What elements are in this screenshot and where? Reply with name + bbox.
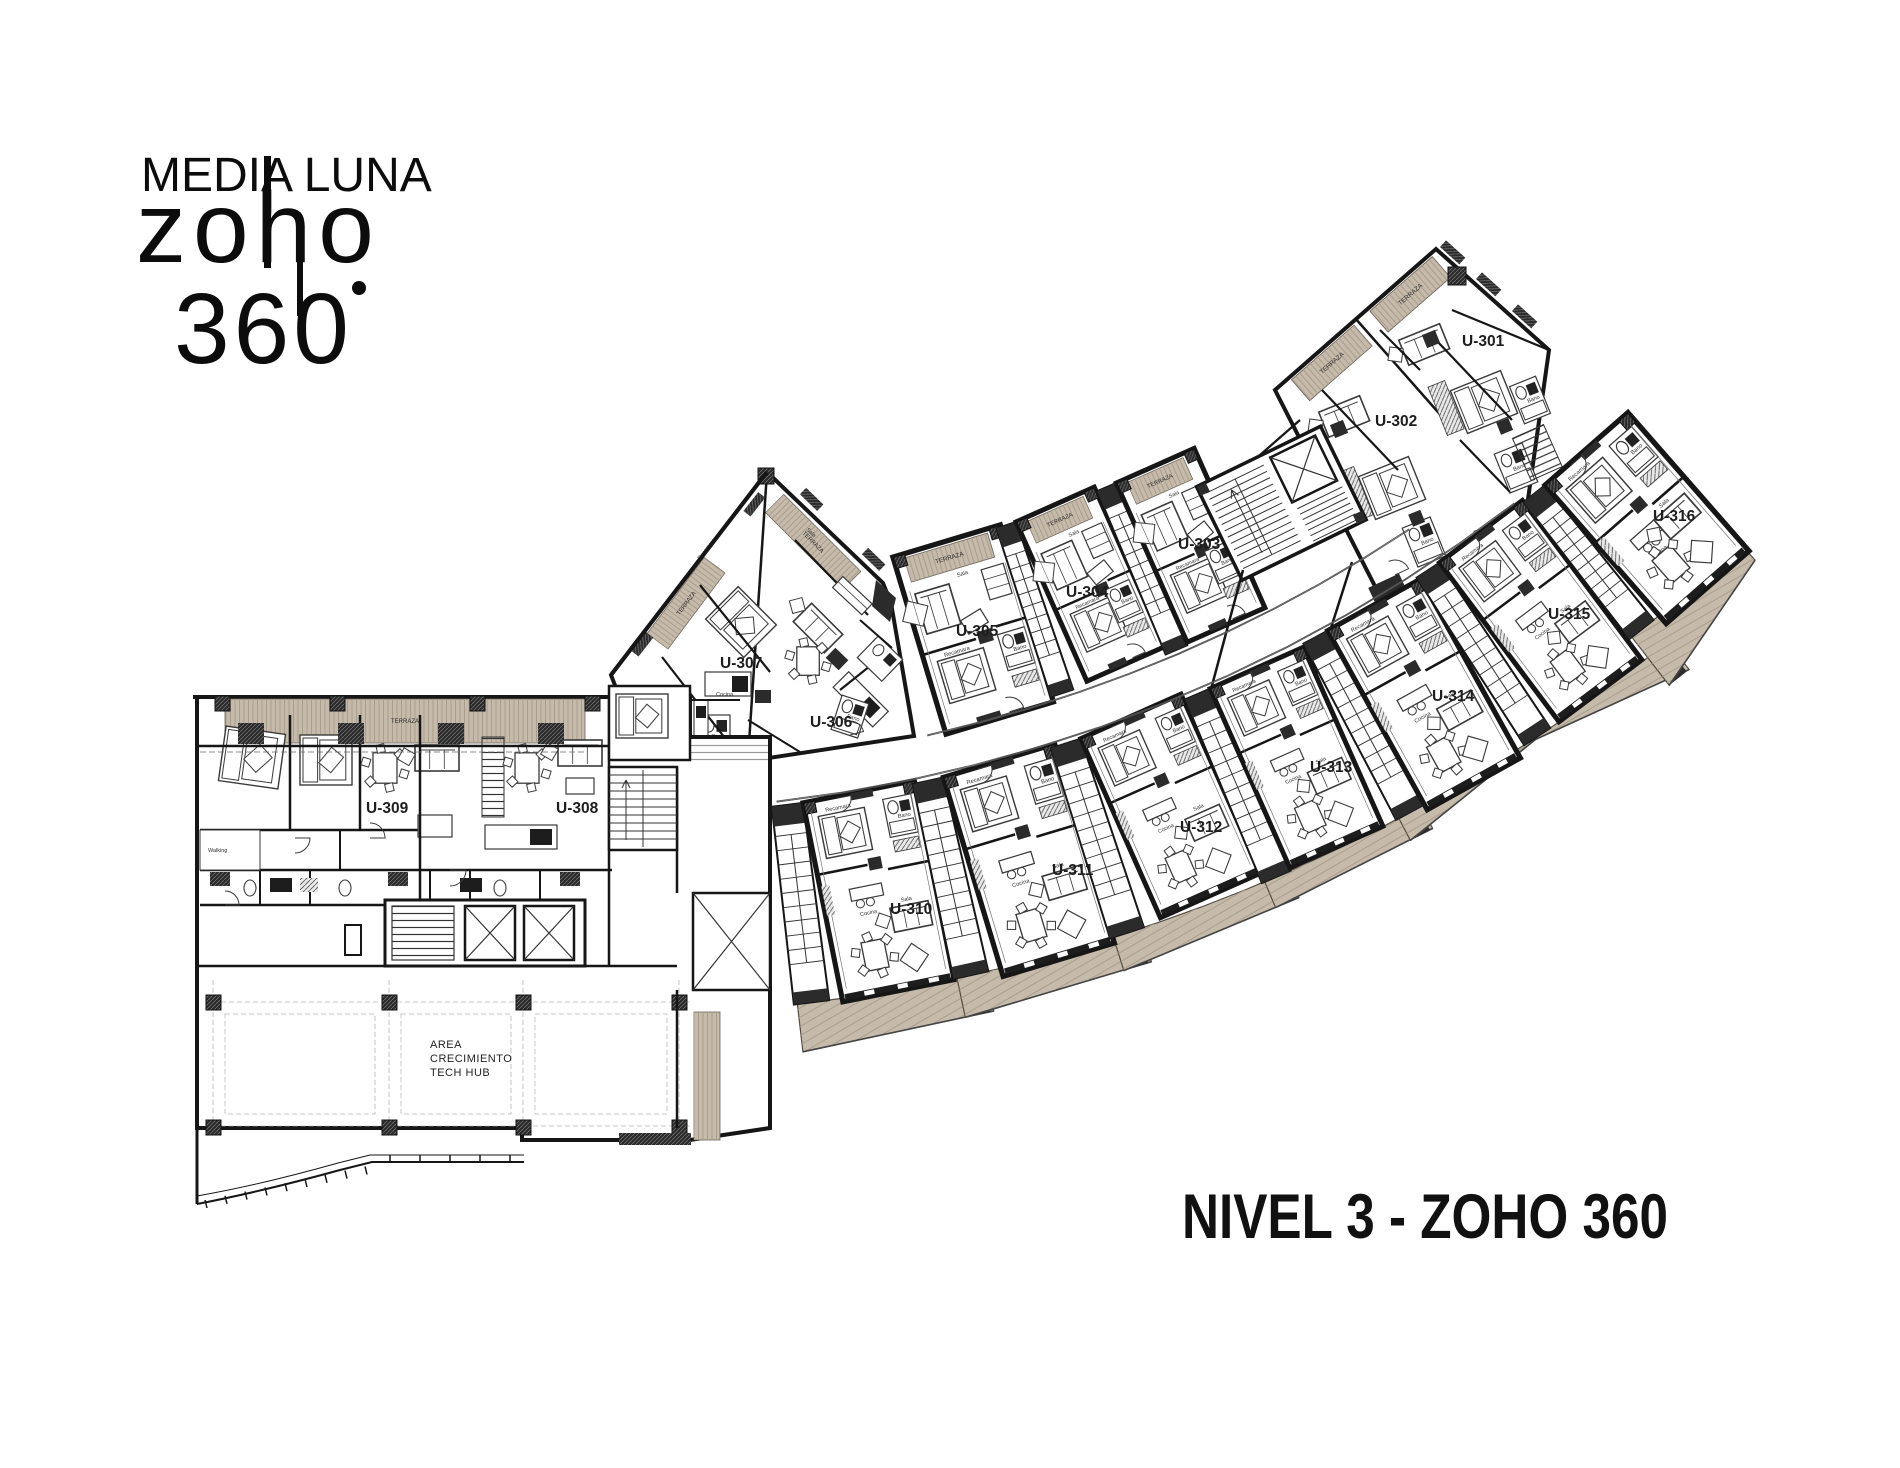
- svg-text:NIVEL 3 - ZOHO 360: NIVEL 3 - ZOHO 360: [1182, 1182, 1668, 1252]
- svg-text:360: 360: [174, 273, 353, 385]
- svg-text:U-311: U-311: [1052, 862, 1094, 879]
- svg-text:AREA: AREA: [430, 1039, 462, 1051]
- svg-text:CRECIMIENTO: CRECIMIENTO: [430, 1053, 512, 1065]
- svg-text:TERRAZA: TERRAZA: [391, 719, 419, 725]
- svg-text:U-302: U-302: [1375, 413, 1417, 430]
- svg-text:U-315: U-315: [1548, 606, 1591, 623]
- svg-text:Walking: Walking: [208, 848, 227, 854]
- svg-text:U-310: U-310: [890, 901, 932, 918]
- svg-text:zoho: zoho: [136, 172, 381, 284]
- svg-text:U-305: U-305: [956, 623, 999, 640]
- svg-text:U-316: U-316: [1653, 508, 1696, 525]
- svg-text:U-312: U-312: [1180, 819, 1222, 836]
- svg-text:U-313: U-313: [1310, 759, 1353, 776]
- svg-text:Cocina: Cocina: [716, 692, 734, 698]
- svg-text:U-306: U-306: [810, 714, 853, 731]
- svg-text:U-303: U-303: [1178, 536, 1221, 553]
- svg-text:U-314: U-314: [1432, 688, 1475, 705]
- svg-text:U-308: U-308: [556, 800, 599, 817]
- svg-text:U-307: U-307: [720, 655, 762, 672]
- svg-text:U-304: U-304: [1066, 584, 1109, 601]
- svg-text:TECH HUB: TECH HUB: [430, 1067, 490, 1079]
- svg-text:U-309: U-309: [366, 800, 409, 817]
- svg-text:U-301: U-301: [1462, 333, 1505, 350]
